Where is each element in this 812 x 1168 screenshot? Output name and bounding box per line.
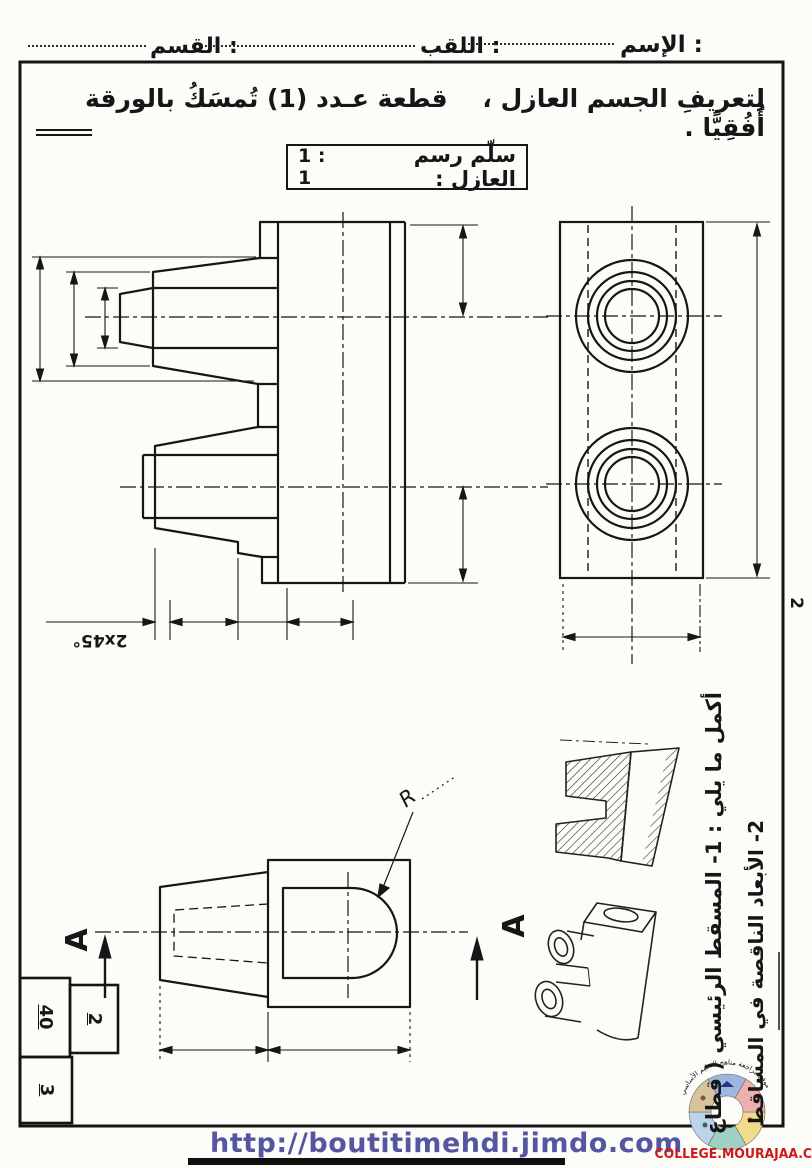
section-view-d-contour — [283, 888, 397, 978]
section-view-centerlines — [95, 872, 468, 998]
score-value-2: 2 — [83, 1000, 105, 1038]
section-view-block — [268, 860, 410, 1007]
scanned-worksheet-page: { "page": { "number": "2" }, "header": {… — [0, 0, 812, 1168]
section-view-frustum — [160, 872, 268, 997]
section-arrow-left — [99, 936, 111, 958]
top-view-dimensions — [563, 222, 770, 652]
score-value-1: 40 — [34, 996, 56, 1038]
section-letter-right: A — [497, 908, 527, 944]
iso-sketch-sectioned — [556, 740, 679, 866]
section-cut-arrows — [99, 936, 483, 1000]
side-note-line1: أكمل ما يلي : 1- المسقط الرئيسي ( قطاع — [702, 692, 748, 1072]
footer-url: http://boutitimehdi.jimdo.com — [210, 1128, 683, 1159]
front-view — [120, 222, 405, 583]
section-view-dimensions — [160, 986, 410, 1062]
front-view-centerlines — [85, 212, 548, 596]
page-number: 2 — [784, 592, 806, 614]
technical-drawing-canvas: R — [0, 0, 812, 1168]
upper-boss-tip — [120, 288, 153, 348]
section-letter-left: A — [60, 922, 90, 958]
section-view — [160, 860, 410, 1007]
radius-label: R — [394, 784, 420, 812]
radius-leader — [378, 776, 456, 897]
section-arrow-right — [471, 938, 483, 960]
footer-site-name: COLLEGE.MOURAJAA.COM — [655, 1146, 806, 1162]
top-view-centerlines — [546, 206, 722, 664]
section-view-hidden-contour — [174, 904, 268, 963]
score-value-3: 3 — [35, 1070, 57, 1110]
side-note-line2: 2- الأبعاد الناقصة في المساقط — [744, 820, 782, 1075]
chamfer-label: 2x45° — [70, 626, 130, 650]
iso-sketch-solid — [531, 903, 656, 1040]
footer-black-bar — [188, 1158, 565, 1165]
